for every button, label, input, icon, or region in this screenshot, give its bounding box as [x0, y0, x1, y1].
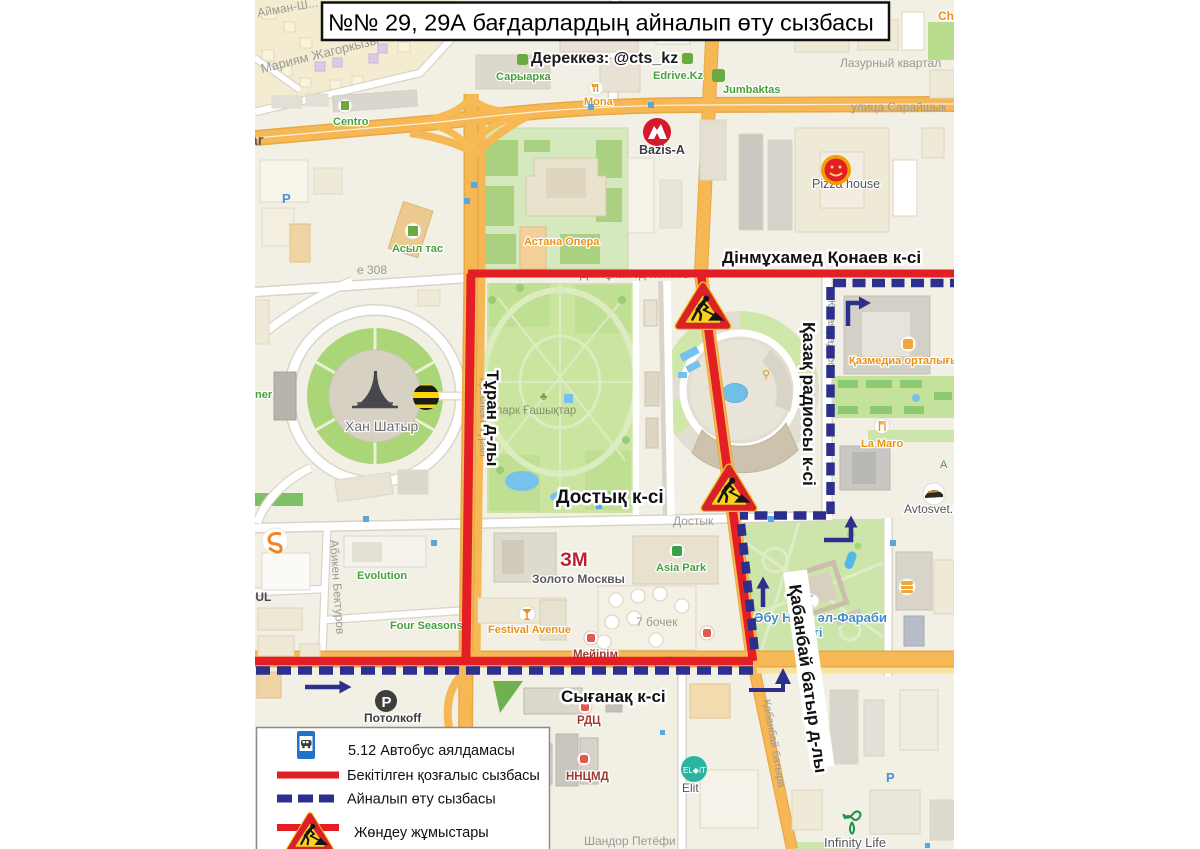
svg-text:Жөндеу жұмыстары: Жөндеу жұмыстары	[354, 825, 489, 841]
svg-text:Edrive.Kz: Edrive.Kz	[653, 70, 704, 82]
svg-text:Infinity Life: Infinity Life	[824, 835, 886, 849]
svg-text:Лазурный квартал: Лазурный квартал	[840, 56, 941, 70]
svg-text:е 308: е 308	[357, 263, 387, 277]
svg-text:7 бочек: 7 бочек	[636, 615, 678, 629]
svg-text:Астана Опера: Астана Опера	[524, 236, 600, 248]
svg-text:Дереккөз: @cts_kz: Дереккөз: @cts_kz	[531, 50, 678, 67]
svg-text:Қазмедиа орталығы: Қазмедиа орталығы	[849, 355, 960, 367]
svg-text:P: P	[282, 191, 291, 206]
svg-text:Four Seasons: Four Seasons	[390, 620, 463, 632]
svg-text:парк Ғашықтар: парк Ғашықтар	[496, 405, 576, 417]
svg-text:♣: ♣	[540, 391, 547, 403]
svg-text:P: P	[886, 770, 895, 785]
svg-text:Evolution: Evolution	[357, 570, 407, 582]
svg-text:ner: ner	[255, 389, 273, 401]
svg-text:EL◆IT: EL◆IT	[683, 766, 706, 775]
svg-text:5.12 Автобус аялдамасы: 5.12 Автобус аялдамасы	[348, 743, 515, 759]
svg-text:Elit: Elit	[682, 781, 699, 795]
svg-text:Сығанақ к-сі: Сығанақ к-сі	[561, 687, 666, 706]
svg-text:Әбу На..р әл-Фараби: Әбу На..р әл-Фараби	[754, 610, 887, 625]
svg-text:Достык: Достык	[673, 514, 714, 528]
svg-text:Festival Avenue: Festival Avenue	[488, 624, 571, 636]
svg-text:ННЦМД: ННЦМД	[566, 771, 609, 783]
svg-text:Jumbaktas: Jumbaktas	[723, 84, 780, 96]
svg-text:Шандор Петёфи: Шандор Петёфи	[584, 834, 676, 848]
svg-text:La Maro: La Maro	[861, 438, 903, 450]
svg-text:Бекітілген қозғалыс сызбасы: Бекітілген қозғалыс сызбасы	[347, 768, 540, 784]
svg-text:Сарыарка: Сарыарка	[496, 71, 552, 83]
svg-text:Асыл тас: Асыл тас	[392, 243, 443, 255]
svg-text:Дінмұхамед Қонаев к-сі: Дінмұхамед Қонаев к-сі	[722, 248, 921, 267]
svg-text:Хан Шатыр: Хан Шатыр	[345, 418, 419, 434]
svg-text:A: A	[940, 459, 948, 471]
svg-text:РДЦ: РДЦ	[577, 715, 601, 727]
svg-text:⚲: ⚲	[762, 369, 770, 381]
svg-text:Asia Park: Asia Park	[656, 562, 707, 574]
svg-text:Золото Москвы: Золото Москвы	[532, 572, 625, 586]
svg-text:Достық к-сі: Достық к-сі	[556, 487, 664, 508]
svg-text:Қазақ радиосы к-сі: Қазақ радиосы к-сі	[799, 322, 819, 486]
svg-text:Потолкоff: Потолкоff	[364, 711, 422, 725]
svg-text:Centro: Centro	[333, 116, 369, 128]
svg-text:ЗМ: ЗМ	[560, 550, 588, 571]
svg-text:Айналып өту сызбасы: Айналып өту сызбасы	[347, 792, 496, 808]
svg-text:P: P	[382, 694, 392, 711]
svg-text:№№ 29, 29А бағдарлардың айналы: №№ 29, 29А бағдарлардың айналып өту сызб…	[328, 10, 874, 36]
svg-text:улица Сарайшык: улица Сарайшык	[851, 100, 947, 114]
svg-text:Тұран д-лы: Тұран д-лы	[483, 370, 502, 466]
